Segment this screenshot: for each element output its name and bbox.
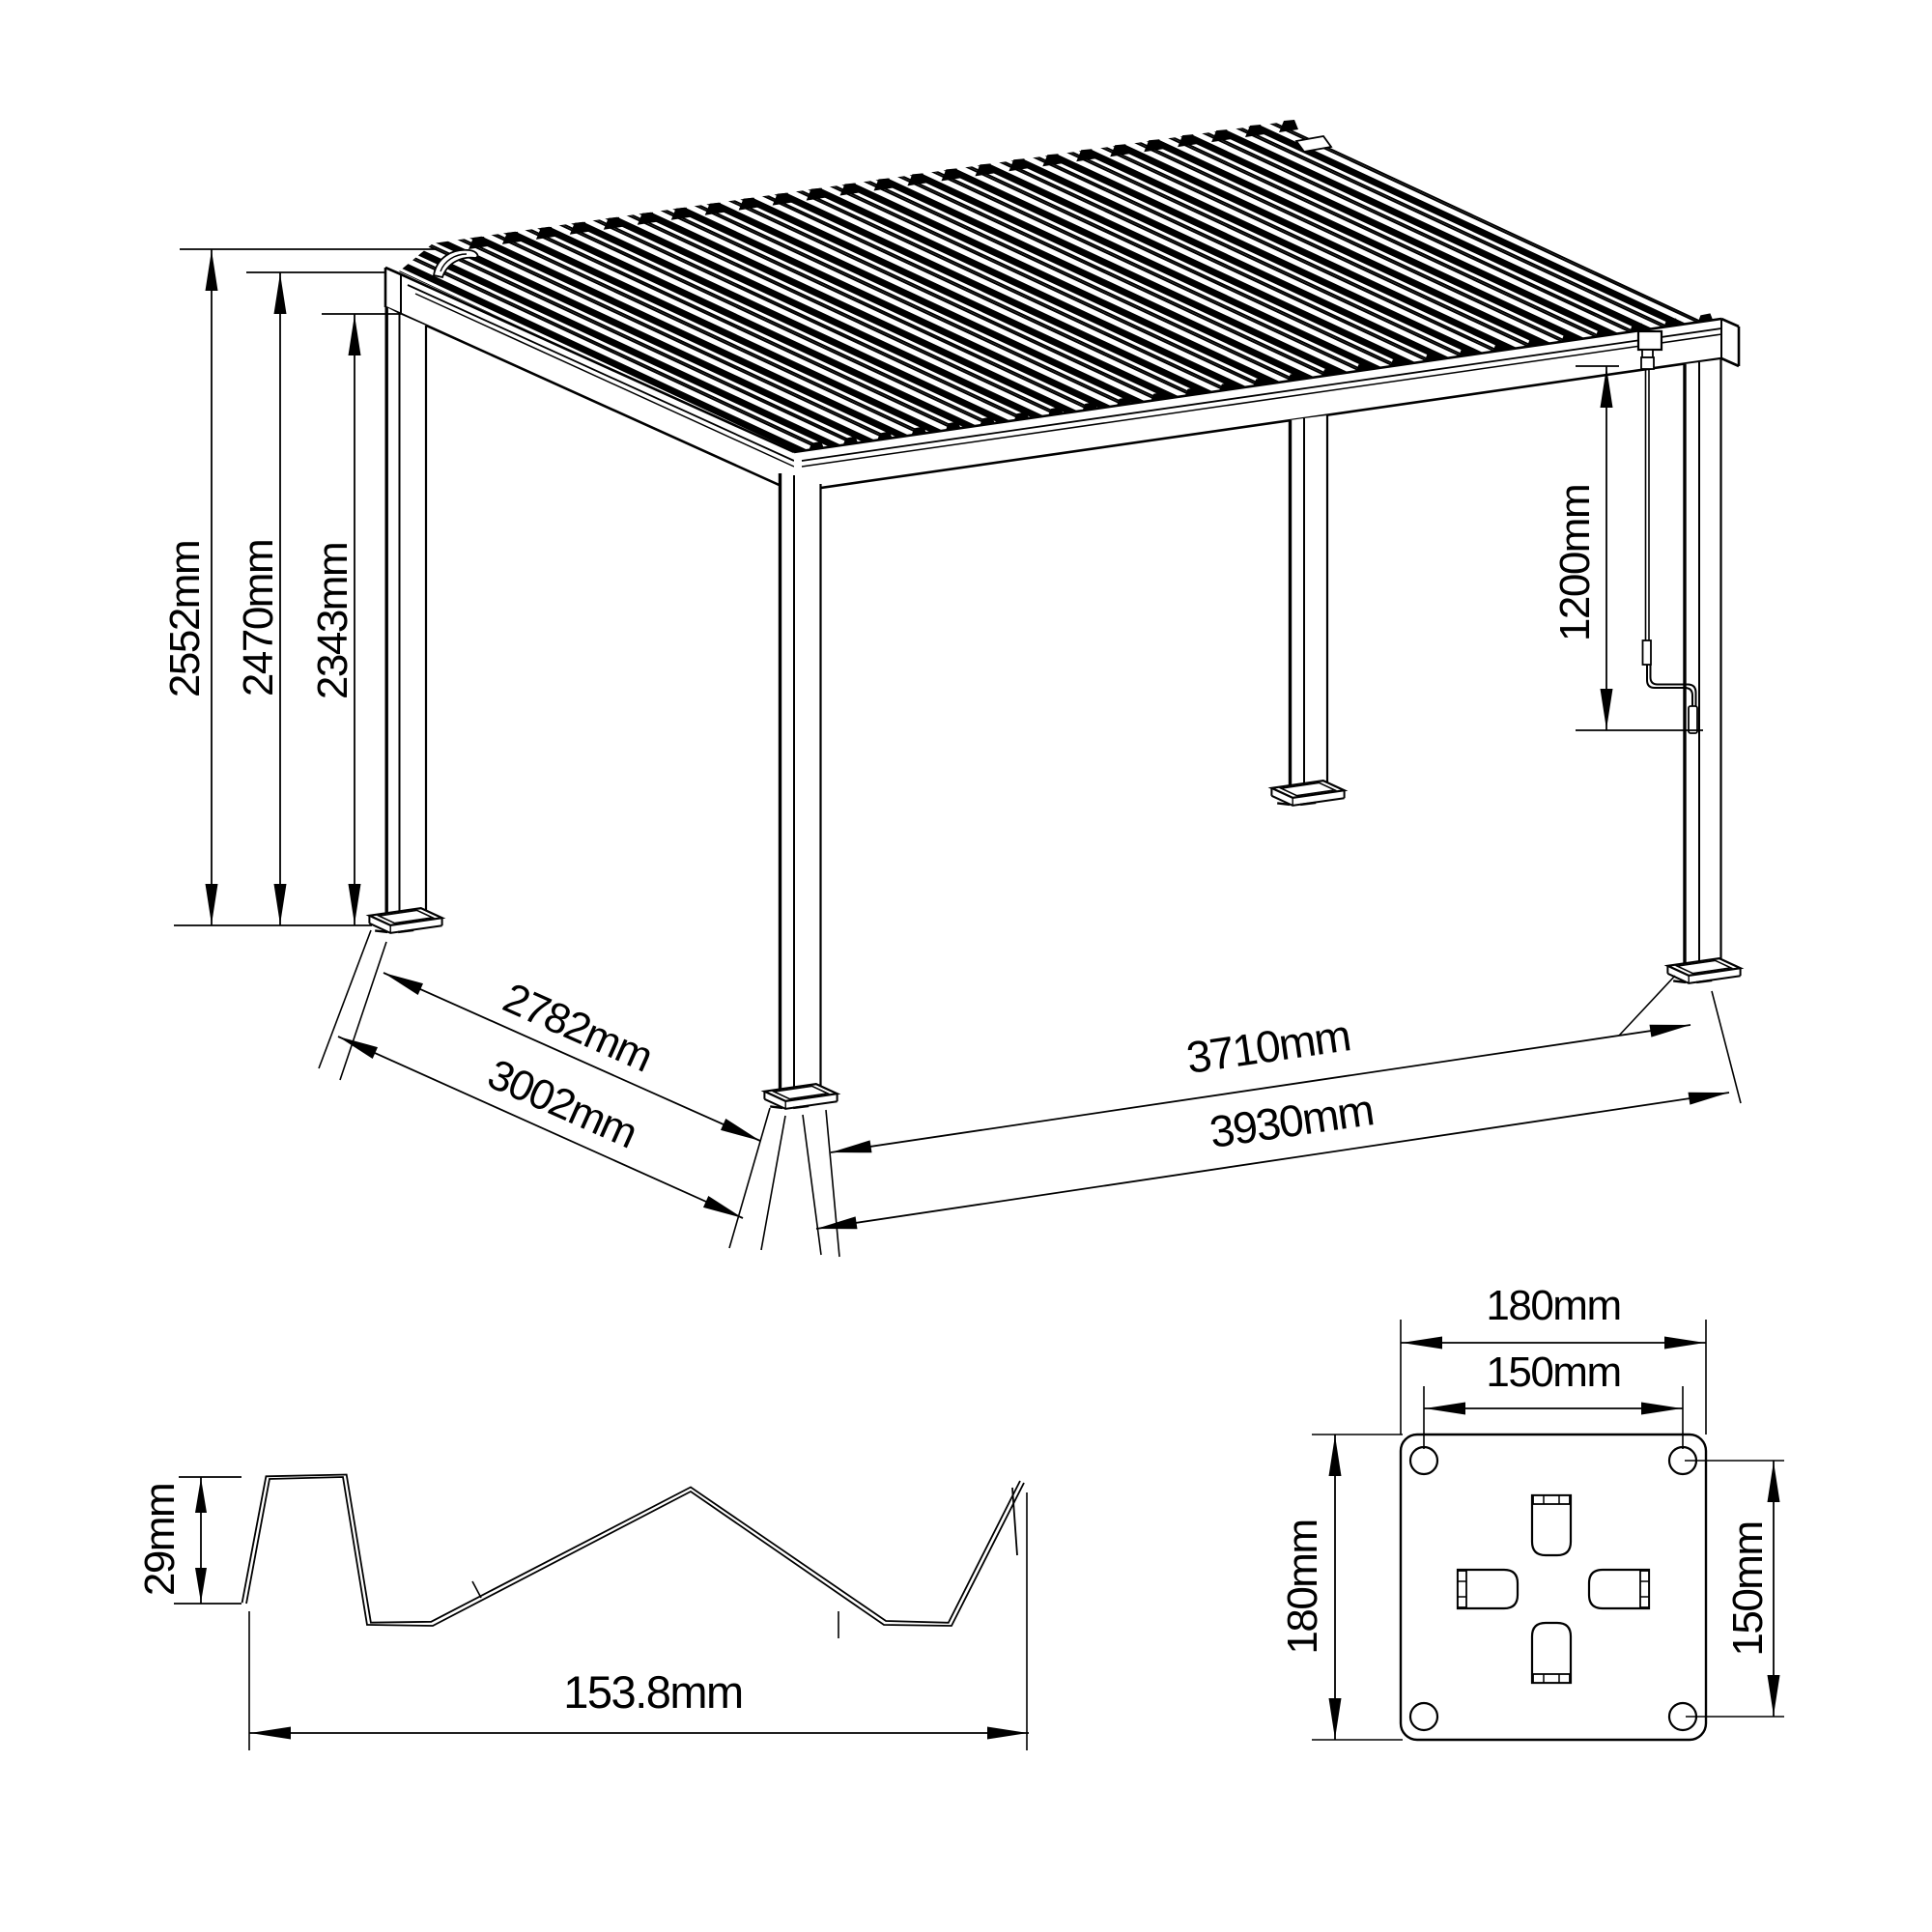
svg-text:180mm: 180mm <box>1486 1282 1620 1329</box>
svg-text:150mm: 150mm <box>1486 1349 1620 1396</box>
svg-text:150mm: 150mm <box>1724 1521 1772 1656</box>
svg-text:180mm: 180mm <box>1279 1520 1326 1654</box>
svg-text:2343mm: 2343mm <box>309 543 356 699</box>
svg-text:29mm: 29mm <box>136 1484 184 1596</box>
svg-text:2552mm: 2552mm <box>161 541 209 697</box>
svg-text:1200mm: 1200mm <box>1551 485 1599 641</box>
svg-text:2470mm: 2470mm <box>235 540 282 696</box>
svg-text:153.8mm: 153.8mm <box>563 1666 742 1718</box>
